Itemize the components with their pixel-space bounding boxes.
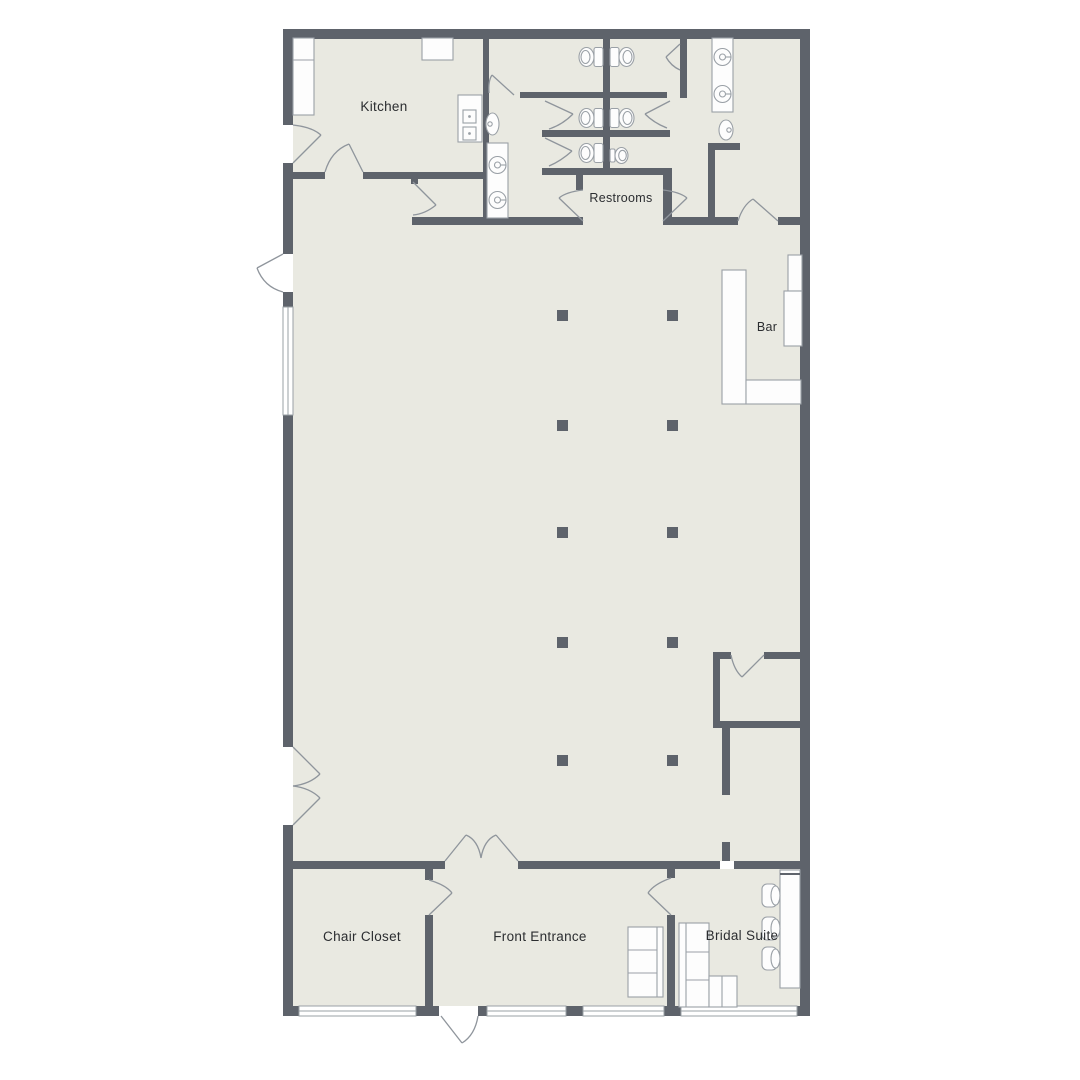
room-label-front-entrance: Front Entrance [493, 929, 587, 944]
sofa-icon [628, 927, 663, 997]
toilet-icon [579, 144, 603, 163]
column-icon [667, 420, 678, 431]
wall-segment [708, 143, 740, 150]
floor-plan-canvas: Kitchen Restrooms Bar Chair Closet Front… [0, 0, 1080, 1080]
wall-segment [283, 415, 293, 747]
sink-icon [714, 86, 731, 103]
wall-segment [566, 1006, 583, 1016]
toilet-icon [579, 109, 603, 128]
toilet-icon [579, 48, 603, 67]
urinal-icon [610, 148, 628, 164]
doorway-gap [439, 1006, 478, 1016]
wall-segment [425, 915, 433, 1006]
column-icon [667, 527, 678, 538]
wall-segment [713, 652, 731, 659]
wall-segment [542, 168, 667, 175]
column-icon [557, 755, 568, 766]
wall-segment [416, 1006, 439, 1016]
sink-icon [489, 192, 506, 209]
room-label-restrooms: Restrooms [589, 191, 652, 205]
toilet-icon [610, 48, 634, 67]
window-icon [583, 1006, 664, 1016]
wall-segment [520, 92, 667, 98]
column-icon [557, 637, 568, 648]
window-icon [283, 307, 293, 415]
toilet-icon [610, 109, 634, 128]
kitchen-counter-icon [293, 38, 314, 115]
wall-segment [734, 861, 800, 869]
column-icon [667, 310, 678, 321]
room-label-kitchen: Kitchen [360, 99, 407, 114]
vanity-counter [712, 38, 733, 112]
column-icon [667, 755, 678, 766]
wall-segment [518, 861, 720, 869]
wall-segment [722, 728, 730, 795]
doorway-gap [283, 125, 293, 163]
column-icon [557, 527, 568, 538]
room-label-bridal-suite: Bridal Suite [706, 928, 779, 943]
wall-segment [800, 29, 810, 1016]
room-label-bar: Bar [757, 320, 777, 334]
wall-segment [283, 1006, 299, 1016]
stove-icon [458, 95, 482, 142]
desk-icon [780, 870, 800, 988]
door-arc-icon [257, 254, 283, 292]
wall-segment [667, 915, 675, 1006]
doorway-gap [283, 254, 293, 292]
wall-segment [283, 163, 293, 254]
wall-segment [663, 217, 738, 225]
room-label-chair-closet: Chair Closet [323, 929, 401, 944]
window-icon [299, 1006, 416, 1016]
column-icon [667, 637, 678, 648]
wall-segment [283, 825, 293, 1016]
wall-segment [764, 652, 800, 659]
wall-segment [283, 292, 293, 307]
kitchen-appliance-icon [422, 38, 453, 60]
window-icon [487, 1006, 566, 1016]
sink-icon [714, 49, 731, 66]
floor-plan: Kitchen Restrooms Bar Chair Closet Front… [0, 0, 1080, 1080]
doorway-gap [720, 861, 734, 869]
wall-segment [542, 130, 670, 137]
wall-segment [680, 38, 687, 98]
wall-segment [283, 29, 293, 125]
sink-icon [489, 157, 506, 174]
sink-icon [486, 113, 499, 135]
vanity-counter [487, 143, 508, 218]
wall-segment [425, 869, 433, 880]
wall-segment [713, 721, 800, 728]
sink-icon [719, 120, 733, 140]
wall-segment [478, 1006, 487, 1016]
wall-segment [293, 861, 445, 869]
wall-segment [293, 172, 325, 179]
wall-segment [412, 217, 483, 225]
wall-segment [411, 172, 418, 184]
wall-segment [713, 652, 720, 728]
wall-segment [722, 842, 730, 861]
column-icon [557, 310, 568, 321]
wall-segment [363, 172, 483, 179]
wall-segment [778, 217, 800, 225]
door-arc-icon [441, 1016, 478, 1043]
column-icon [557, 420, 568, 431]
doorway-gap [283, 747, 293, 825]
wall-segment [797, 1006, 810, 1016]
wall-segment [576, 168, 583, 190]
chair-icon [762, 947, 780, 970]
wall-segment [667, 869, 675, 878]
wall-segment [708, 150, 715, 225]
chair-icon [762, 884, 780, 907]
wall-segment [603, 29, 610, 175]
